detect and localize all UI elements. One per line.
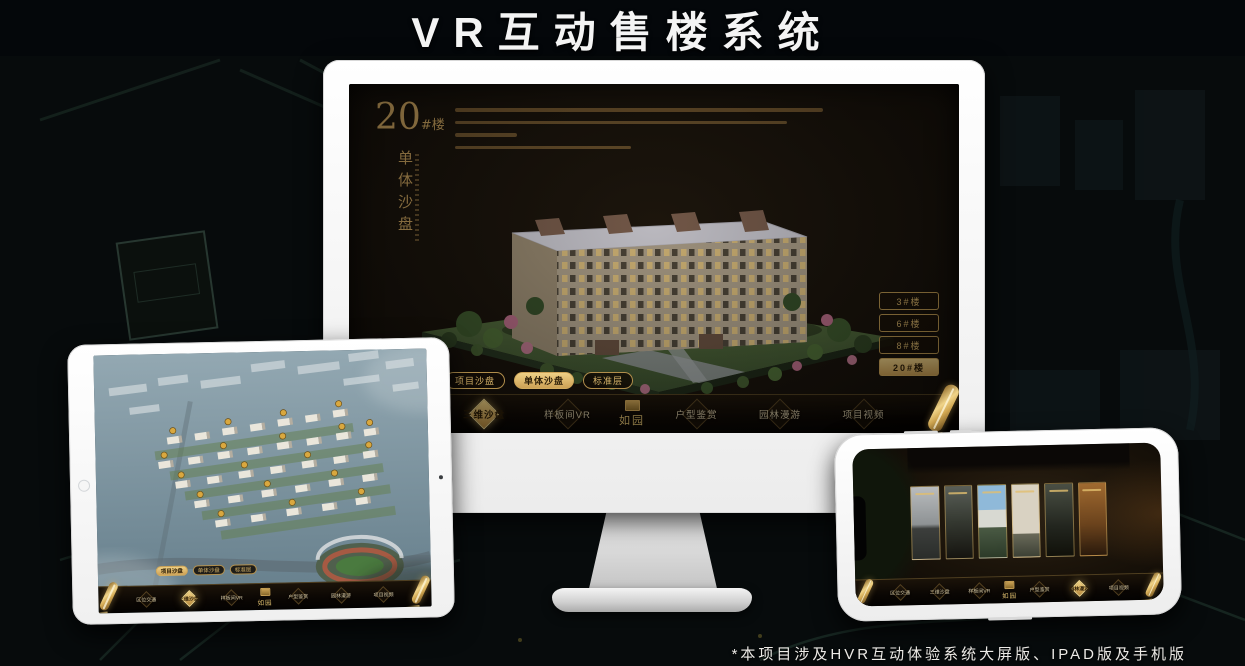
nav-item[interactable]: 区位交通: [129, 586, 164, 613]
nav-item[interactable]: 项目视频: [1102, 574, 1137, 601]
subtab[interactable]: 项目沙盘: [445, 372, 505, 389]
ipad-nav-bar: 区位交通三维沙盘样板间VR如园户型鉴赏园林漫游项目视频: [98, 579, 431, 613]
scroll-menu-icon[interactable]: [926, 382, 959, 433]
nav-item-label: 户型鉴赏: [288, 593, 308, 600]
nav-item-label: 样板间VR: [221, 594, 243, 601]
footnote-text: *本项目涉及HVR互动体验系统大屏版、IPAD版及手机版: [732, 643, 1187, 664]
scroll-menu-icon[interactable]: [856, 578, 874, 605]
description-line: [455, 133, 517, 137]
nav-item-label: 三维沙盘: [930, 588, 950, 595]
vr-scene-card[interactable]: [1044, 483, 1074, 558]
nav-item-label: 样板间VR: [544, 407, 591, 421]
vr-scene-card[interactable]: [910, 486, 940, 561]
nav-item-label: 区位交通: [136, 596, 156, 603]
nav-item[interactable]: 园林漫游: [324, 582, 359, 609]
nav-item-label: 户型鉴赏: [1030, 586, 1050, 593]
subtab[interactable]: 标准层: [583, 372, 633, 389]
floor-button[interactable]: 8#楼: [879, 336, 939, 354]
nav-item-label: 项目视频: [1109, 584, 1129, 591]
sandtable-subtabs: 项目沙盘单体沙盘标准层: [445, 372, 633, 389]
block-number: 20: [375, 97, 421, 138]
nav-items-row: 区位交通三维沙盘样板间VR如园户型鉴赏园林漫游项目视频: [877, 574, 1142, 606]
nav-item[interactable]: 园林漫游: [748, 395, 812, 433]
nav-item[interactable]: 样板间VR: [962, 577, 997, 604]
floor-button[interactable]: 6#楼: [879, 314, 939, 332]
subtab[interactable]: 标准层: [230, 564, 257, 575]
monitor-stand-base: [552, 588, 752, 612]
phone-notch: [853, 496, 866, 560]
ipad-subtabs: 项目沙盘单体沙盘标准层: [156, 564, 257, 576]
nav-item-label: 三维沙盘: [179, 595, 199, 602]
vr-scene-card[interactable]: [1011, 483, 1041, 558]
nav-item[interactable]: 样板间VR: [536, 395, 600, 433]
floor-button[interactable]: 20#楼: [879, 358, 939, 376]
vr-scene-card[interactable]: [1078, 482, 1108, 557]
page-header: VR互动售楼系统: [0, 0, 1245, 58]
nav-item-label: 户型鉴赏: [675, 407, 717, 421]
monitor-stand-neck: [588, 513, 718, 593]
brand-logo: 如园: [619, 400, 645, 428]
page-title: VR互动售楼系统: [411, 0, 833, 60]
nav-item-label: 三维沙盘: [463, 407, 505, 421]
nav-item[interactable]: 户型鉴赏: [281, 583, 316, 610]
floor-button[interactable]: 3#楼: [879, 292, 939, 310]
description-line: [455, 108, 823, 112]
nav-item[interactable]: 户型鉴赏: [1022, 576, 1057, 603]
nav-item[interactable]: 项目视频: [832, 395, 896, 433]
nav-items-row: 区位交通三维沙盘样板间VR如园户型鉴赏园林漫游项目视频: [120, 581, 409, 613]
building-3d-model[interactable]: [407, 142, 907, 404]
nav-item[interactable]: 园林漫游: [1062, 575, 1097, 602]
brand-logo-text: 如园: [619, 412, 645, 428]
brand-seal-icon: [1004, 580, 1014, 588]
scroll-menu-icon[interactable]: [1144, 571, 1162, 598]
ipad-device: 项目沙盘单体沙盘标准层 区位交通三维沙盘样板间VR如园户型鉴赏园林漫游项目视频: [67, 337, 455, 625]
nav-item[interactable]: 三维沙盘: [452, 395, 516, 433]
nav-item[interactable]: 项目视频: [366, 581, 401, 608]
phone-screen: 区位交通三维沙盘样板间VR如园户型鉴赏园林漫游项目视频: [852, 443, 1163, 607]
block-number-suffix: #楼: [421, 118, 445, 133]
description-line: [455, 121, 787, 125]
ipad-camera-icon: [78, 480, 90, 492]
vr-scene-card[interactable]: [944, 485, 974, 560]
brand-logo-text: 如园: [257, 596, 272, 606]
aerial-masterplan-view[interactable]: [93, 349, 431, 614]
brand-seal-icon: [260, 587, 270, 595]
nav-item[interactable]: 区位交通: [883, 579, 918, 606]
brand-seal-icon: [625, 400, 640, 411]
block-title: 20#楼: [375, 100, 445, 136]
brand-logo-text: 如园: [1002, 589, 1017, 599]
floor-button-group: 3#楼6#楼8#楼20#楼: [879, 292, 939, 376]
phone-volume-button: [950, 430, 972, 433]
ipad-screen: 项目沙盘单体沙盘标准层 区位交通三维沙盘样板间VR如园户型鉴赏园林漫游项目视频: [93, 349, 431, 614]
brand-logo: 如园: [257, 587, 272, 606]
nav-item[interactable]: 样板间VR: [214, 584, 249, 611]
nav-item-label: 项目视频: [842, 407, 884, 421]
phone-nav-bar: 区位交通三维沙盘样板间VR如园户型鉴赏园林漫游项目视频: [855, 572, 1164, 606]
subtab[interactable]: 单体沙盘: [514, 372, 574, 389]
nav-item-label: 园林漫游: [331, 592, 351, 599]
phone-volume-button: [904, 431, 938, 435]
nav-item[interactable]: 三维沙盘: [922, 578, 957, 605]
vr-scene-gallery: [910, 482, 1108, 560]
subtab[interactable]: 单体沙盘: [193, 565, 225, 576]
scroll-menu-icon[interactable]: [99, 581, 120, 612]
ipad-button-icon[interactable]: [439, 475, 443, 479]
nav-item-label: 园林漫游: [759, 407, 801, 421]
nav-item-label: 项目视频: [374, 591, 394, 598]
brand-logo: 如园: [1002, 580, 1017, 599]
nav-item-label: 样板间VR: [968, 587, 990, 594]
phone-device: 区位交通三维沙盘样板间VR如园户型鉴赏园林漫游项目视频: [834, 427, 1182, 622]
nav-item[interactable]: 户型鉴赏: [665, 395, 729, 433]
nav-item-label: 园林漫游: [1069, 585, 1089, 592]
subtab[interactable]: 项目沙盘: [156, 566, 188, 577]
nav-item[interactable]: 三维沙盘: [172, 585, 207, 612]
scroll-menu-icon[interactable]: [410, 574, 431, 605]
nav-item-label: 区位交通: [890, 589, 910, 596]
vr-scene-card[interactable]: [977, 484, 1007, 559]
